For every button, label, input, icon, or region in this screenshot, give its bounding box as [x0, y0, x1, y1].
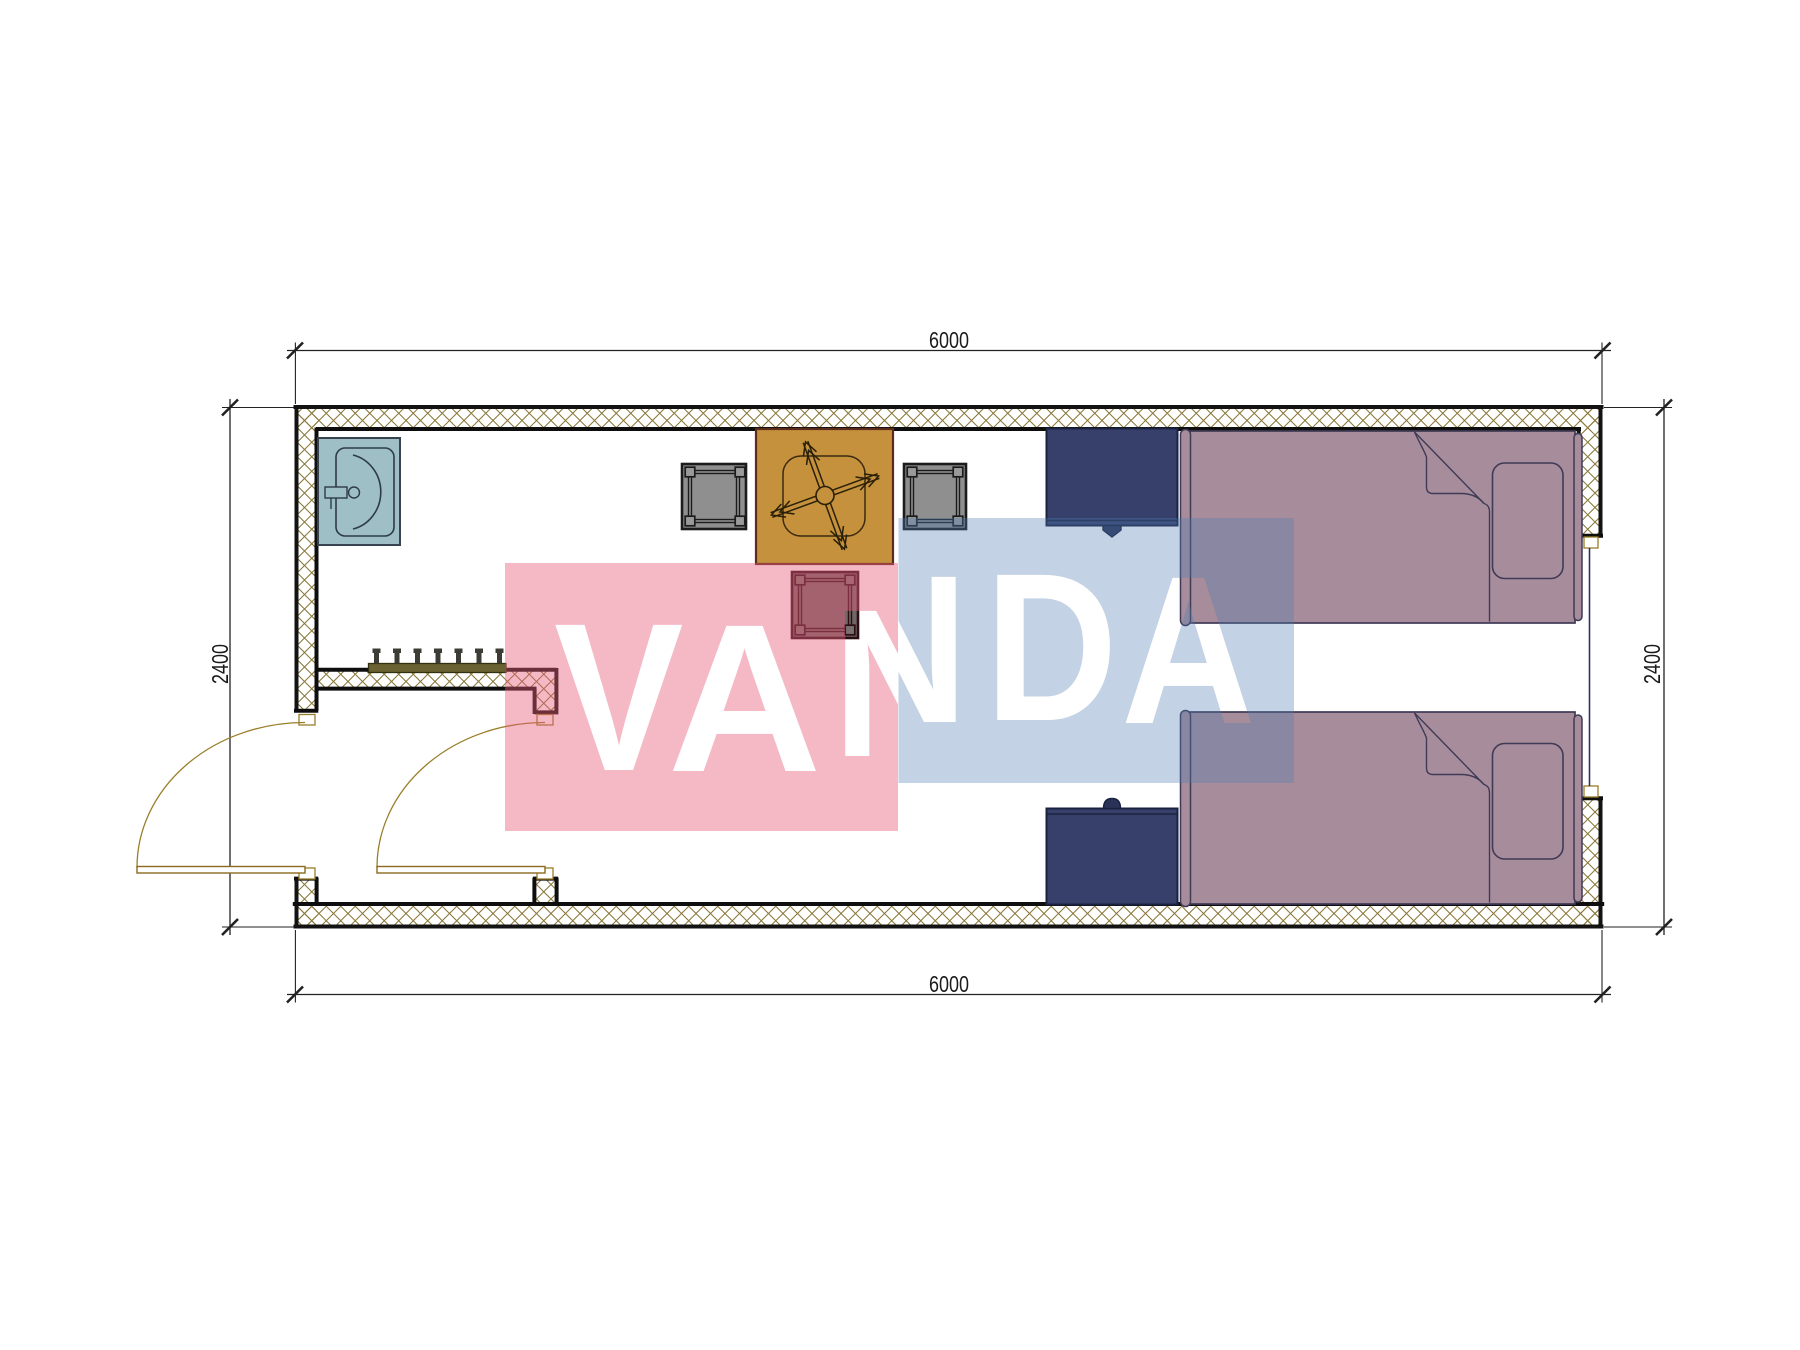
- svg-text:2400: 2400: [1639, 644, 1665, 684]
- svg-text:2400: 2400: [207, 644, 233, 684]
- svg-text:6000: 6000: [929, 327, 969, 353]
- svg-text:6000: 6000: [929, 971, 969, 997]
